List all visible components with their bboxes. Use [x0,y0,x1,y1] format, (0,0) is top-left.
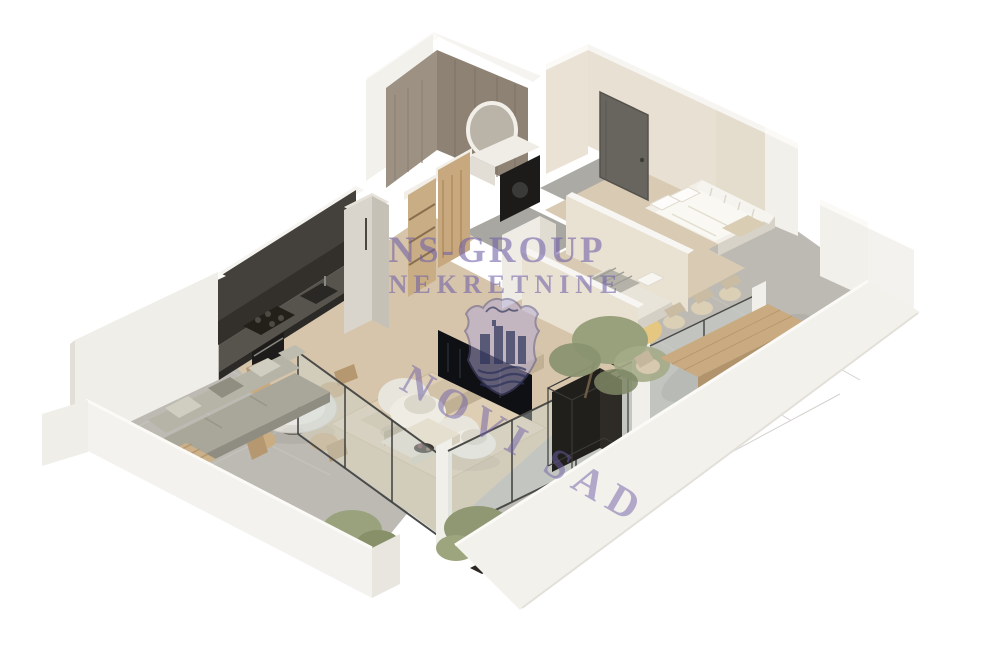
chair [719,287,741,301]
floorplan-svg: NS-GROUP NEKRETNINE NOVI SAD [0,0,1000,666]
chair [663,315,685,329]
entry-wall [546,50,588,174]
burner [255,317,261,323]
door-handle [640,158,644,162]
chair [691,301,713,315]
tree-foliage [549,343,601,377]
floorplan-render: NS-GROUP NEKRETNINE NOVI SAD [0,0,1000,666]
burner [269,321,275,327]
tree-foliage [594,369,638,395]
burner [265,311,271,317]
watermark-line2: NEKRETNINE [389,270,624,299]
watermark-line1: NS-GROUP [388,230,605,271]
burner [278,315,284,321]
fridge-side [372,196,389,329]
fridge-front [344,196,372,334]
washing-machine-door [512,182,528,198]
